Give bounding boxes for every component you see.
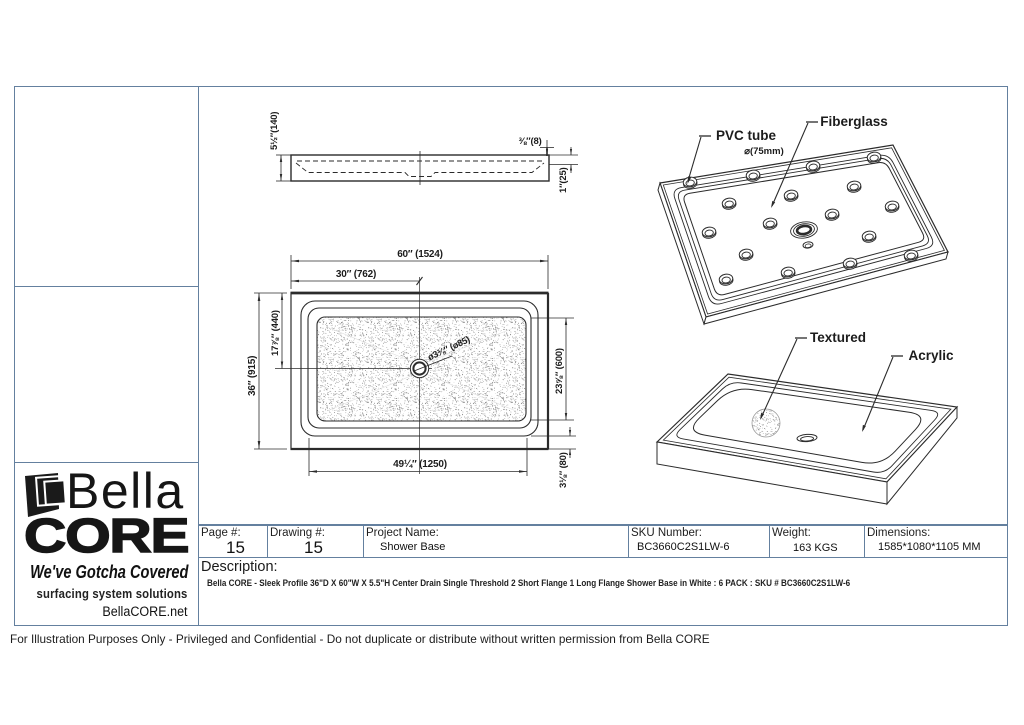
svg-text:3⅛″ (80): 3⅛″ (80) [558,452,569,488]
svg-text:49¼″ (1250): 49¼″ (1250) [393,459,447,470]
svg-text:17⅞″ (440): 17⅞″ (440) [270,310,281,356]
svg-text:PVC tube: PVC tube [716,128,776,143]
svg-text:23⅝″ (600): 23⅝″ (600) [554,348,565,394]
svg-text:⌀(75mm): ⌀(75mm) [744,146,784,157]
svg-text:Fiberglass: Fiberglass [820,114,888,129]
svg-text:Textured: Textured [810,330,866,345]
svg-text:5½″(140): 5½″(140) [269,112,280,150]
svg-text:1″(25): 1″(25) [558,167,569,193]
svg-text:30″ (762): 30″ (762) [336,269,376,280]
svg-text:Acrylic: Acrylic [908,348,954,363]
svg-text:60″ (1524): 60″ (1524) [397,249,443,260]
svg-text:36″ (915): 36″ (915) [247,356,258,396]
svg-text:⅜″(8): ⅜″(8) [518,136,541,147]
